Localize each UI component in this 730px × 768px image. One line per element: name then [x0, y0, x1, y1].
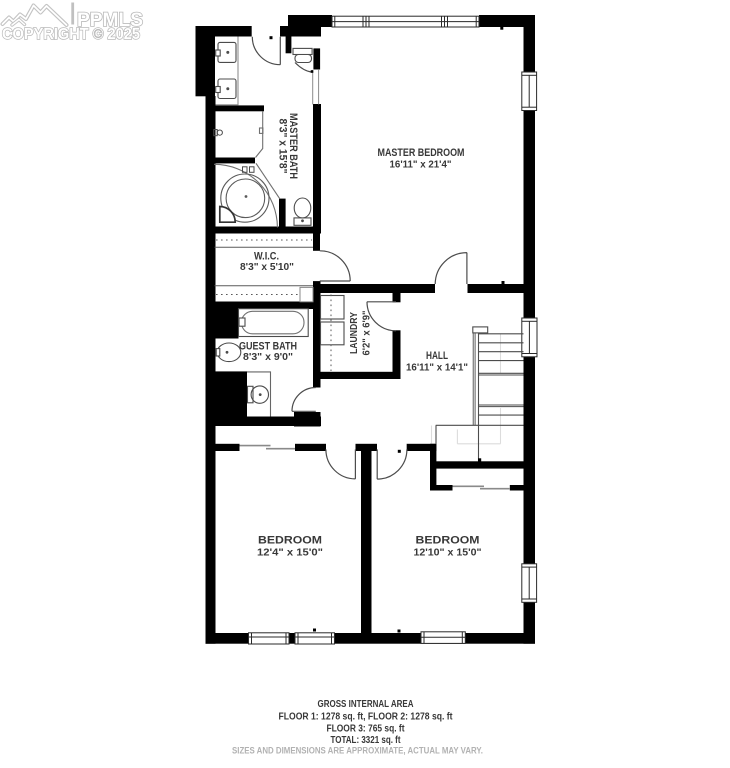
svg-text:BEDROOM: BEDROOM	[258, 535, 322, 547]
svg-text:8'3" x 5'10": 8'3" x 5'10"	[240, 261, 294, 273]
svg-text:FLOOR 3: 765 sq. ft: FLOOR 3: 765 sq. ft	[327, 723, 405, 735]
svg-text:8'3" x 9'0": 8'3" x 9'0"	[243, 351, 293, 363]
svg-text:12'4" x 15'0": 12'4" x 15'0"	[257, 547, 323, 559]
svg-text:FLOOR 1: 1278 sq. ft, FLOOR 2:: FLOOR 1: 1278 sq. ft, FLOOR 2: 1278 sq. …	[279, 711, 453, 723]
svg-text:16'11" x 14'1": 16'11" x 14'1"	[406, 362, 468, 374]
svg-text:16'11" x 21'4": 16'11" x 21'4"	[390, 159, 452, 171]
svg-text:TOTAL: 3321 sq. ft: TOTAL: 3321 sq. ft	[331, 734, 401, 746]
svg-text:6'2" x 6'9": 6'2" x 6'9"	[361, 310, 373, 355]
svg-text:GROSS INTERNAL AREA: GROSS INTERNAL AREA	[318, 698, 414, 710]
svg-text:COPYRIGHT © 2025: COPYRIGHT © 2025	[2, 26, 140, 43]
svg-text:SIZES AND DIMENSIONS ARE APPRO: SIZES AND DIMENSIONS ARE APPROXIMATE, AC…	[232, 746, 483, 757]
svg-text:BEDROOM: BEDROOM	[416, 535, 480, 547]
svg-text:MASTER BEDROOM: MASTER BEDROOM	[378, 147, 465, 159]
svg-text:8'3" x 15'8": 8'3" x 15'8"	[277, 119, 289, 174]
svg-text:12'10" x 15'0": 12'10" x 15'0"	[414, 547, 482, 559]
svg-text:LAUNDRY: LAUNDRY	[348, 312, 360, 354]
svg-text:HALL: HALL	[426, 350, 448, 362]
